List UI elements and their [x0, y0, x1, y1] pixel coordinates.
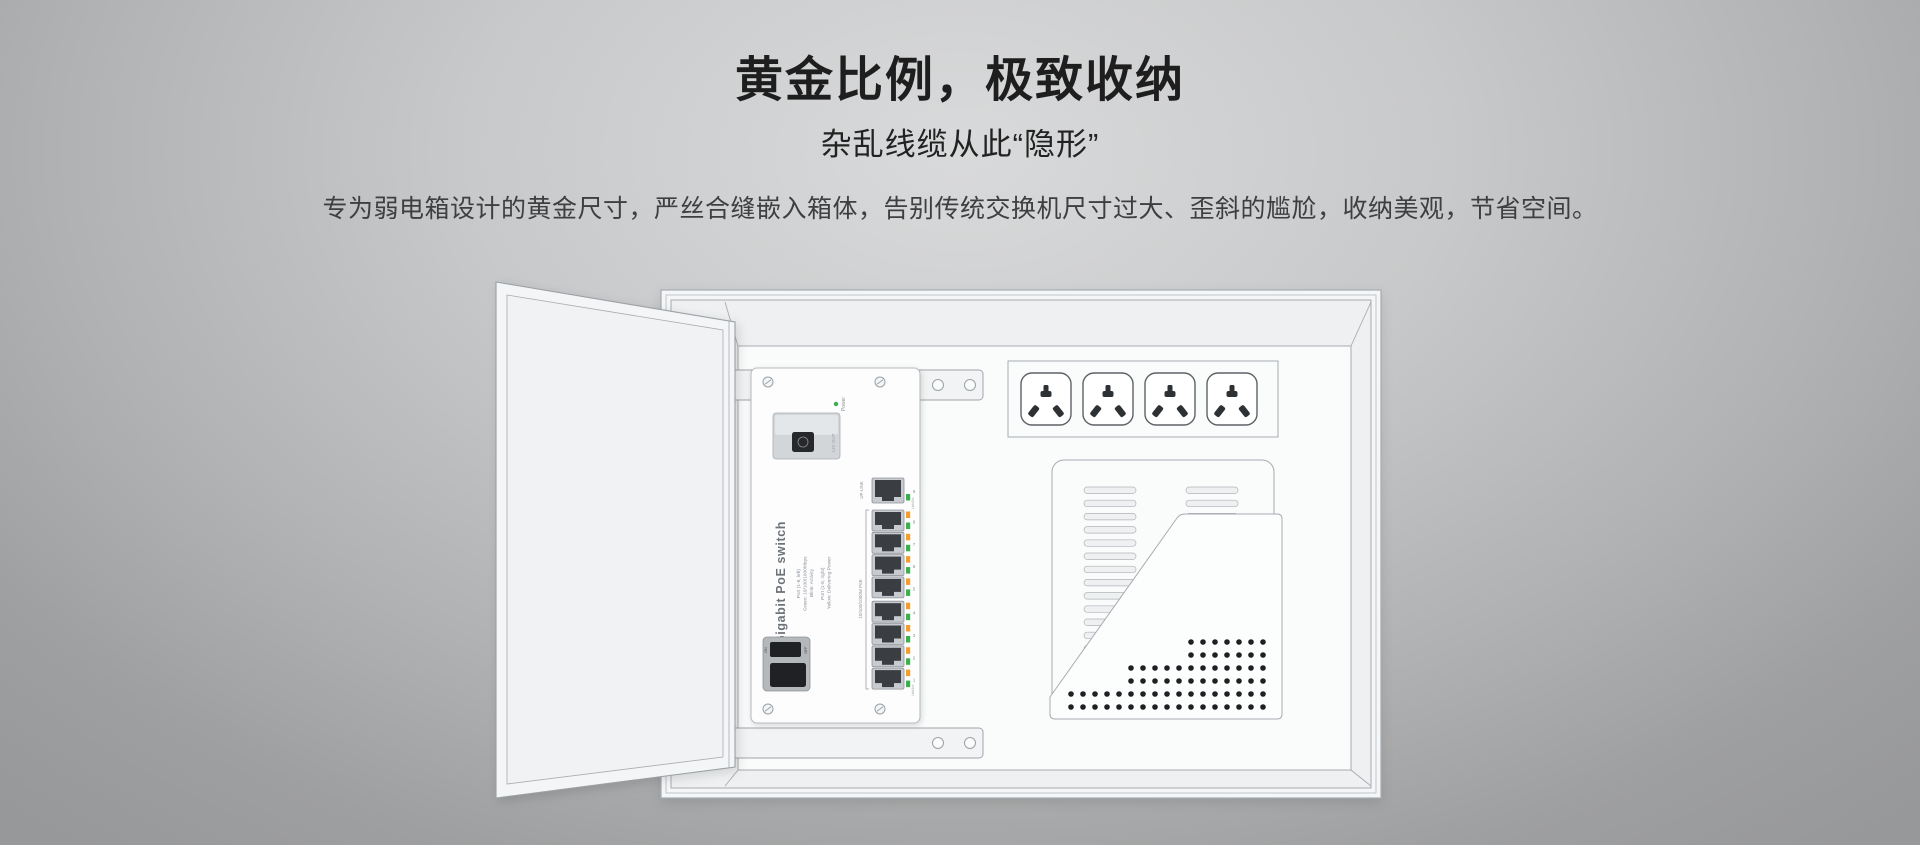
dc-connector	[792, 432, 814, 452]
outlet-socket	[1207, 373, 1257, 425]
outlet-socket	[1145, 373, 1195, 425]
poe-led	[906, 670, 910, 677]
promo-section: 黄金比例，极致收纳 杂乱线缆从此“隐形” 专为弱电箱设计的黄金尺寸，严丝合缝嵌入…	[0, 0, 1920, 845]
page-title: 黄金比例，极致收纳	[0, 40, 1920, 110]
outlet-socket	[1083, 373, 1133, 425]
port-number: 2	[913, 655, 916, 660]
poe-led	[906, 625, 910, 632]
ports-group-label: 10/100/1000M PoE	[858, 579, 863, 618]
outlet-panel	[1008, 361, 1278, 437]
box-door	[496, 282, 735, 798]
port-number: 9	[913, 489, 916, 494]
dc-out-label: 12V OUT	[831, 433, 836, 452]
poe-led	[906, 647, 910, 654]
port-number: 8	[913, 520, 916, 525]
link-act-label-top: Link/Act	[911, 498, 915, 509]
rail-hole	[965, 380, 976, 391]
dip-on-label: ON	[764, 647, 768, 653]
switch-title: Gigabit PoE switch	[774, 521, 788, 645]
dip-switch-block: ON OFF	[763, 637, 810, 691]
link-led	[906, 681, 910, 688]
link-led	[906, 636, 910, 643]
door-inner-panel	[507, 295, 723, 784]
page-description: 专为弱电箱设计的黄金尺寸，严丝合缝嵌入箱体，告别传统交换机尺寸过大、歪斜的尴尬，…	[0, 189, 1920, 225]
rail-hole	[933, 380, 944, 391]
port-number: 6	[913, 564, 916, 569]
link-act-label-bottom: Link/Act	[911, 685, 915, 696]
page-subtitle: 杂乱线缆从此“隐形”	[0, 119, 1920, 164]
port-number: 5	[913, 586, 916, 591]
link-led	[906, 614, 910, 621]
link-led	[906, 567, 910, 574]
power-label: Power	[841, 397, 847, 412]
poe-led	[906, 556, 910, 563]
dip-off-label: OFF	[804, 646, 808, 654]
port-number: 3	[913, 633, 916, 638]
poe-switch: 12V OUT Power Gigabit PoE switch Port (1…	[751, 368, 920, 723]
link-led	[906, 658, 910, 665]
poe-led	[906, 578, 910, 585]
mounting-rail-bottom	[720, 728, 983, 758]
rail-hole	[933, 738, 944, 749]
port-number: 4	[913, 611, 916, 616]
port-number: 7	[913, 542, 916, 547]
poe-led	[906, 534, 910, 541]
rail-hole	[965, 738, 976, 749]
outlet-socket	[1021, 373, 1071, 425]
link-led	[906, 589, 910, 596]
uplink-label: UP-LINK	[859, 481, 864, 498]
vent-panel	[1050, 460, 1282, 719]
link-led	[906, 545, 910, 552]
poe-led	[906, 603, 910, 610]
link-led	[906, 523, 910, 530]
port-number: 1	[913, 678, 916, 683]
dc-power-module: 12V OUT	[773, 413, 840, 459]
poe-led	[906, 512, 910, 519]
uplink-led	[906, 494, 910, 501]
power-led	[834, 402, 838, 406]
enclosure-illustration: 12V OUT Power Gigabit PoE switch Port (1…	[480, 273, 1430, 813]
